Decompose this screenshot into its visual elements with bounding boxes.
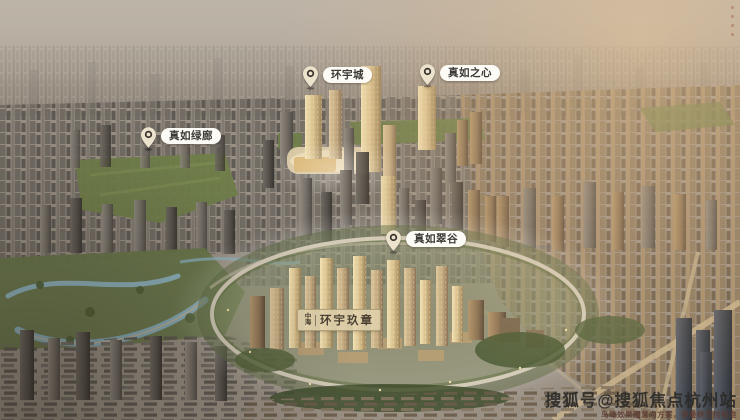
- city-aerial-artwork: [0, 0, 740, 420]
- marker-label: 真如之心: [440, 65, 500, 81]
- marker-label: 真如绿廊: [161, 128, 221, 144]
- sohu-watermark: 搜狐号@搜狐焦点杭州站 鸟瞰效果图意向方案，非最终交付标准: [545, 393, 737, 418]
- plaque-title: 环宇玖章: [320, 312, 374, 328]
- project-name-plaque: 中海 环宇玖章: [297, 309, 381, 331]
- aerial-rendering: 真如绿廊 环宇城 真如之心 真如翠谷 中海 环宇玖章 搜狐号@搜狐焦点杭州: [0, 0, 740, 420]
- location-pin-icon: [303, 66, 318, 90]
- watermark-disclaimer-text: 鸟瞰效果图意向方案，非最终交付标准: [545, 411, 737, 419]
- faint-corner-marks: [731, 6, 734, 36]
- map-marker-huanyu-city: 环宇城: [303, 66, 372, 90]
- map-marker-zhenru-heart: 真如之心: [420, 64, 500, 88]
- plaque-brand-prefix: 中海: [304, 314, 312, 327]
- marker-label: 真如翠谷: [406, 231, 466, 247]
- location-pin-icon: [420, 64, 435, 88]
- location-pin-icon: [386, 230, 401, 254]
- plaque-divider: [315, 315, 316, 326]
- marker-label: 环宇城: [323, 67, 372, 83]
- watermark-main-text: 搜狐号@搜狐焦点杭州站: [545, 393, 737, 410]
- map-marker-zhenru-green-corridor: 真如绿廊: [141, 127, 221, 151]
- location-pin-icon: [141, 127, 156, 151]
- map-marker-zhenru-emerald-valley: 真如翠谷: [386, 230, 466, 254]
